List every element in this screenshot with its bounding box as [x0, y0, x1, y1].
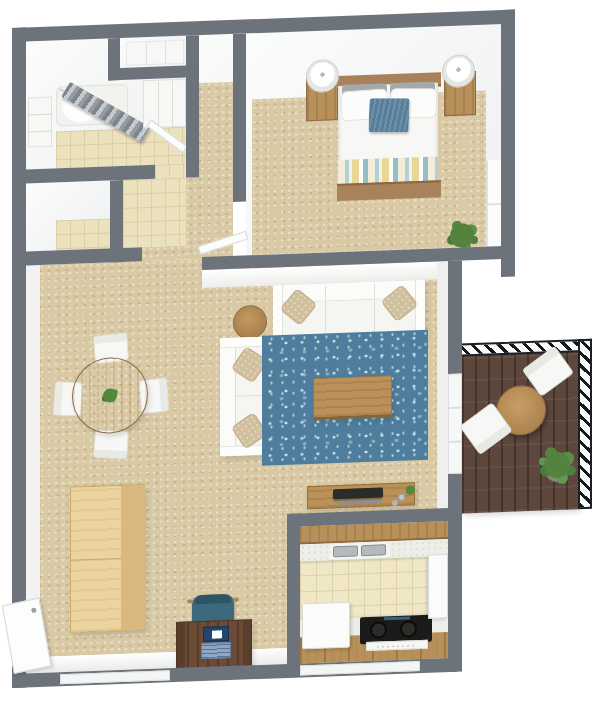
- bedroom-window: [486, 160, 501, 249]
- stove-burner-right: [400, 620, 417, 638]
- bed-accent-pillow: [368, 98, 409, 132]
- sink-basin-left: [333, 545, 358, 557]
- tv: [333, 487, 383, 499]
- kitchen-sink: [330, 542, 390, 559]
- laptop: [203, 626, 229, 642]
- desk-chair-back: [195, 594, 231, 604]
- laptop-keyboard: [201, 642, 231, 659]
- stove-burner-left: [370, 621, 387, 639]
- storage-cabinet-side: [121, 485, 145, 630]
- refrigerator: [428, 554, 448, 619]
- wall-bathroom-right: [186, 35, 199, 177]
- balcony-door-sill: [437, 376, 448, 472]
- dining-chair-south: [93, 430, 129, 459]
- bathroom-shelf-unit: [28, 97, 52, 148]
- wall-left: [12, 27, 26, 688]
- floor-plan-image: [0, 0, 600, 702]
- wall-bedroom-left: [233, 33, 246, 201]
- coffee-table: [313, 375, 392, 420]
- entry-opening-floor: [142, 246, 186, 262]
- hall-closet-doors: [126, 40, 184, 66]
- entry-door-handle: [31, 607, 37, 613]
- sofa-vertical-back: [220, 342, 236, 453]
- balcony-sliding-door: [448, 373, 462, 474]
- sink-basin-right: [361, 544, 386, 556]
- bathroom-door-threshold: [155, 164, 186, 179]
- closet-floor: [56, 218, 110, 250]
- apartment-plan: [0, 0, 600, 702]
- balcony-railing-right: [578, 339, 592, 510]
- wall-right-bedroom: [501, 10, 515, 278]
- entry-hall-floor: [123, 178, 186, 248]
- dishwasher: [302, 602, 350, 650]
- wall-kitchen-left: [287, 513, 300, 665]
- storage-cabinet: [70, 484, 145, 633]
